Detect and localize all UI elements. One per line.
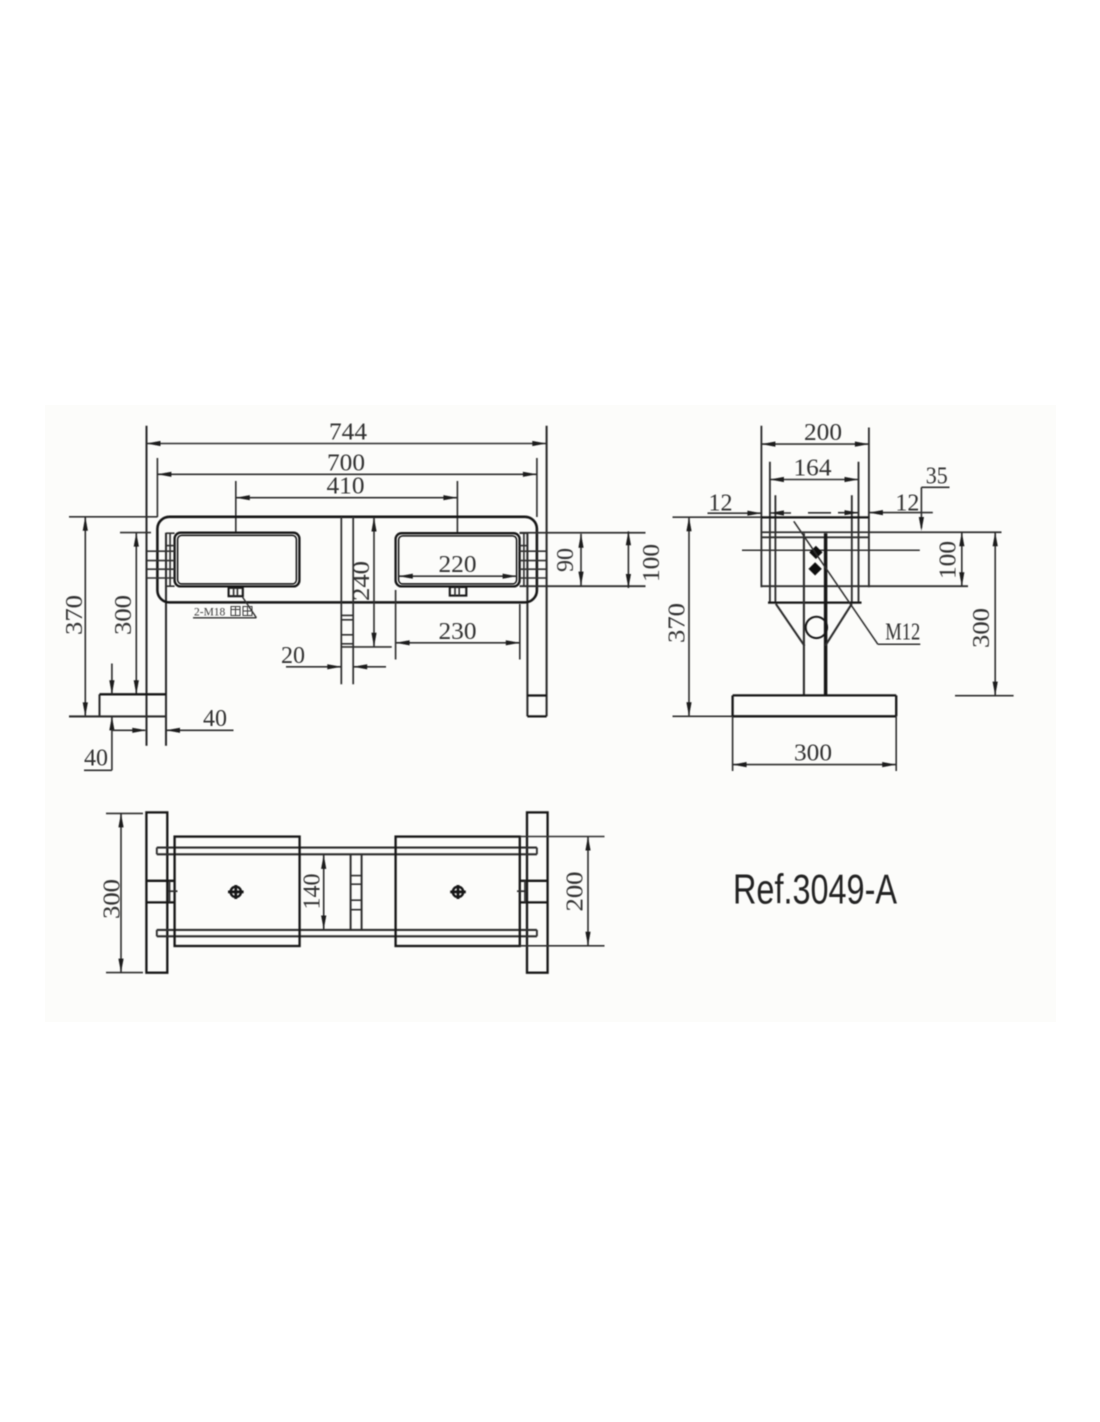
svg-text:200: 200: [563, 872, 589, 912]
svg-text:90: 90: [553, 548, 579, 572]
svg-text:220: 220: [439, 552, 477, 578]
svg-text:Ref.3049-A: Ref.3049-A: [733, 866, 897, 913]
svg-text:410: 410: [327, 474, 365, 500]
svg-text:370: 370: [665, 603, 691, 643]
svg-text:300: 300: [111, 595, 137, 635]
svg-text:100: 100: [936, 541, 962, 579]
svg-text:40: 40: [84, 746, 108, 772]
svg-text:12: 12: [895, 491, 919, 517]
svg-text:700: 700: [327, 450, 365, 476]
svg-text:300: 300: [794, 741, 832, 767]
svg-text:164: 164: [794, 456, 832, 482]
svg-text:140: 140: [300, 874, 326, 910]
svg-text:100: 100: [639, 544, 665, 582]
svg-text:M12: M12: [885, 620, 920, 646]
svg-text:200: 200: [804, 420, 842, 446]
svg-text:2-M18: 2-M18: [194, 607, 226, 619]
svg-text:35: 35: [926, 464, 948, 490]
svg-text:40: 40: [203, 706, 227, 732]
svg-text:240: 240: [349, 561, 375, 601]
svg-text:370: 370: [62, 595, 88, 635]
svg-text:230: 230: [439, 619, 477, 645]
svg-text:744: 744: [329, 420, 367, 446]
svg-text:20: 20: [281, 643, 305, 669]
svg-text:300: 300: [969, 608, 995, 648]
svg-text:300: 300: [100, 879, 126, 919]
svg-text:12: 12: [709, 491, 733, 517]
